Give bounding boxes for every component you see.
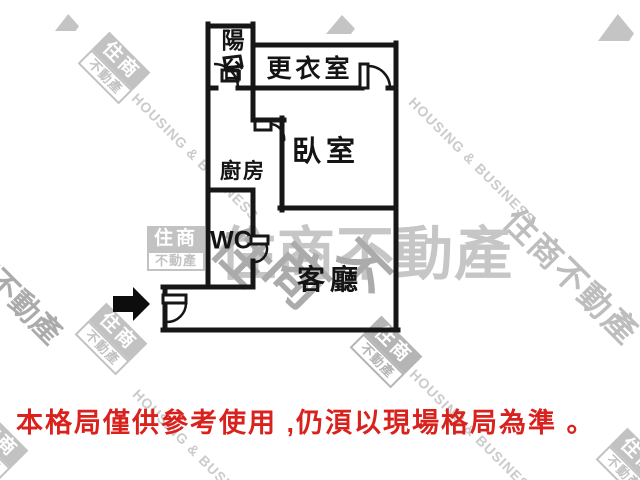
entrance-arrow-icon bbox=[113, 287, 150, 321]
room-label-kitchen: 廚房 bbox=[220, 155, 266, 185]
room-label-bedroom: 臥室 bbox=[292, 128, 360, 170]
room-label-balcony: 陽台 bbox=[214, 28, 248, 88]
door-leaf-dressing bbox=[360, 64, 368, 88]
door-arc-dressing bbox=[368, 66, 390, 88]
floor-plan-image: 住商 不動產 住商 不動產 住商 不動產 住商 不動產 HOUSING & BU… bbox=[0, 0, 640, 480]
door-leaf-wc bbox=[251, 236, 268, 244]
door-arc-entrance bbox=[167, 303, 186, 322]
door-leaf-bedroom bbox=[255, 121, 271, 130]
room-label-living: 客廳 bbox=[297, 258, 363, 298]
door-arc-wc bbox=[254, 244, 267, 262]
room-label-dressing: 更衣室 bbox=[266, 49, 353, 85]
door-leaf-entrance bbox=[163, 295, 186, 303]
room-label-wc: WC bbox=[210, 227, 252, 256]
disclaimer-text: 本格局僅供參考使用 ,仍湏以現場格局為準 。 bbox=[16, 401, 596, 440]
